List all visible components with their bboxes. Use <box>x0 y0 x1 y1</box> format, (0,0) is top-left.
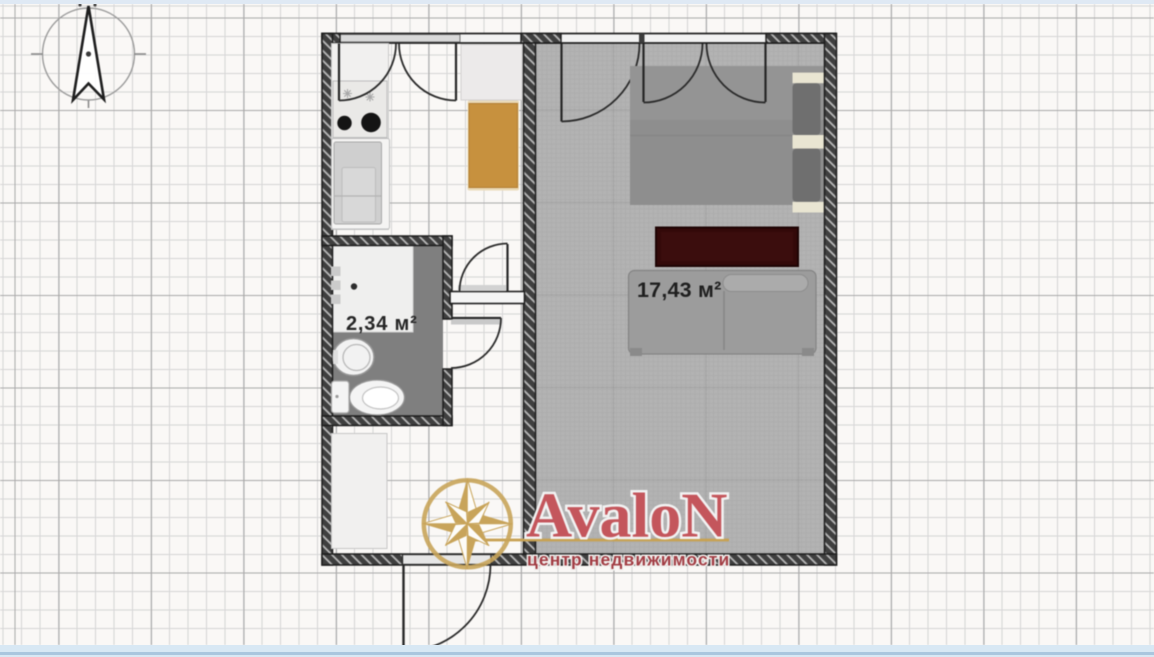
svg-text:17,43 м²: 17,43 м² <box>637 278 721 302</box>
svg-text:центр недвижимости: центр недвижимости <box>527 550 730 570</box>
svg-text:2,34 м²: 2,34 м² <box>346 313 418 335</box>
svg-text:AvaloN: AvaloN <box>526 480 727 551</box>
